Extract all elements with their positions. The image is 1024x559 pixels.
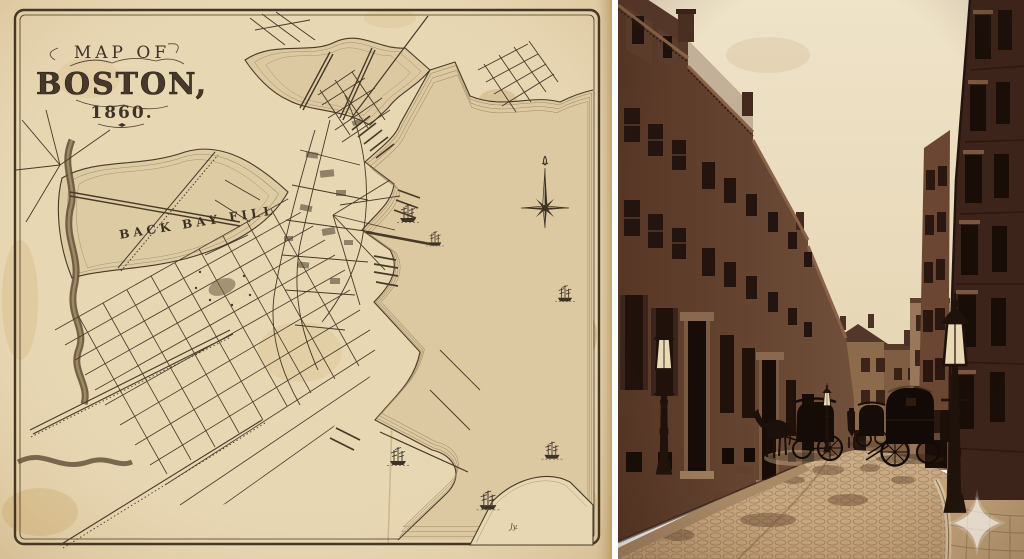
photo-vignette: [618, 0, 1024, 559]
map-title-line1: MAP OF: [74, 43, 170, 63]
composite-image: MAP OF BOSTON, 1860. BACK BAY FILL Jy.: [0, 0, 1024, 559]
map-signature: Jy.: [508, 523, 518, 531]
boston-map-graphic: MAP OF BOSTON, 1860. BACK BAY FILL Jy.: [0, 0, 612, 559]
street-photo-graphic: [618, 0, 1024, 559]
map-title-line2: BOSTON,: [36, 67, 208, 102]
map-title-line3: 1860.: [90, 103, 153, 123]
map-panel: MAP OF BOSTON, 1860. BACK BAY FILL Jy.: [0, 0, 612, 559]
photo-panel: [618, 0, 1024, 559]
